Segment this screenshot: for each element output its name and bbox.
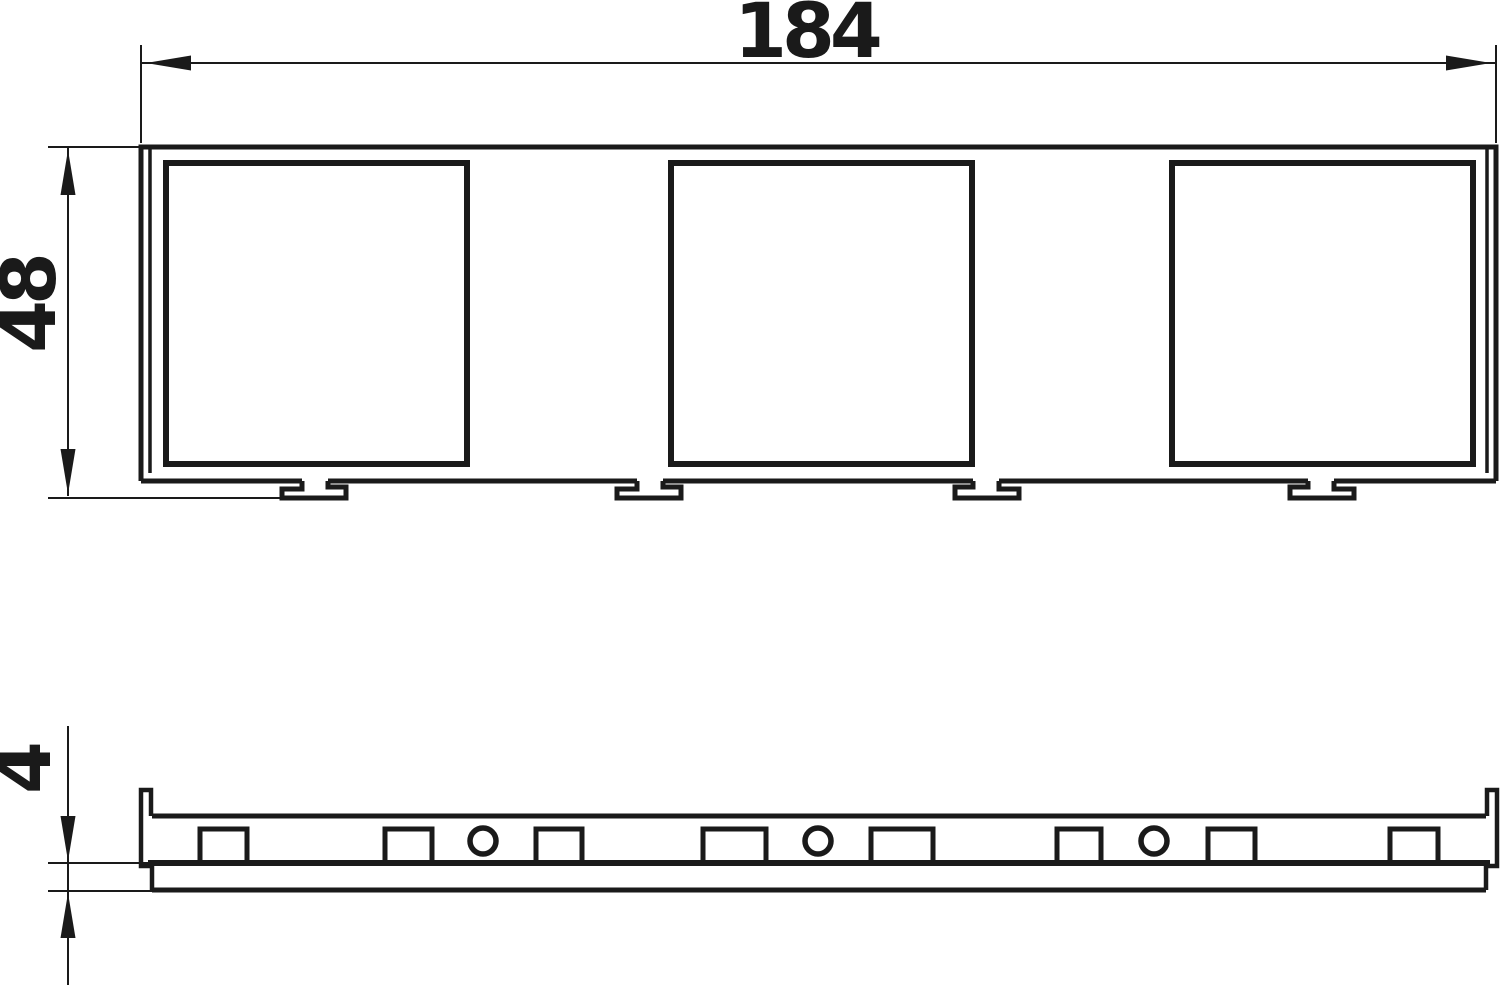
dimension-arrowhead	[61, 816, 76, 861]
device-opening	[166, 163, 467, 464]
retaining-clip	[200, 829, 247, 863]
dimension-arrowhead	[61, 893, 76, 938]
top-view	[141, 147, 1496, 498]
screw-hole	[1141, 828, 1167, 854]
claw-foot	[282, 481, 346, 498]
device-opening	[1172, 163, 1473, 464]
dimension-arrowhead	[61, 449, 76, 494]
dimension-linework	[48, 45, 1496, 985]
dimension-width-label: 184	[734, 0, 880, 75]
retaining-clip	[536, 829, 582, 863]
device-opening	[671, 163, 972, 464]
left-end-tab	[141, 790, 152, 890]
drawing-svg: 184 48 4	[0, 0, 1500, 986]
technical-drawing-page: 184 48 4	[0, 0, 1500, 986]
retaining-clip	[385, 829, 432, 863]
screw-hole	[805, 828, 831, 854]
side-view	[141, 790, 1497, 890]
claw-foot	[1290, 481, 1354, 498]
claw-foot	[617, 481, 681, 498]
screw-hole	[470, 828, 496, 854]
retaining-clip	[1208, 829, 1255, 863]
frame-outline	[141, 147, 1496, 481]
retaining-clip	[1390, 829, 1438, 863]
dimension-thickness-label: 4	[0, 744, 68, 794]
retaining-clip	[703, 829, 766, 863]
dimension-arrowhead	[61, 150, 76, 195]
retaining-clip	[1057, 829, 1101, 863]
dimension-arrowhead	[1446, 56, 1491, 71]
retaining-clip	[871, 829, 933, 863]
dimension-arrowhead	[146, 56, 191, 71]
claw-foot	[955, 481, 1019, 498]
dimension-height-label: 48	[0, 256, 73, 353]
right-end-tab	[1486, 790, 1497, 890]
